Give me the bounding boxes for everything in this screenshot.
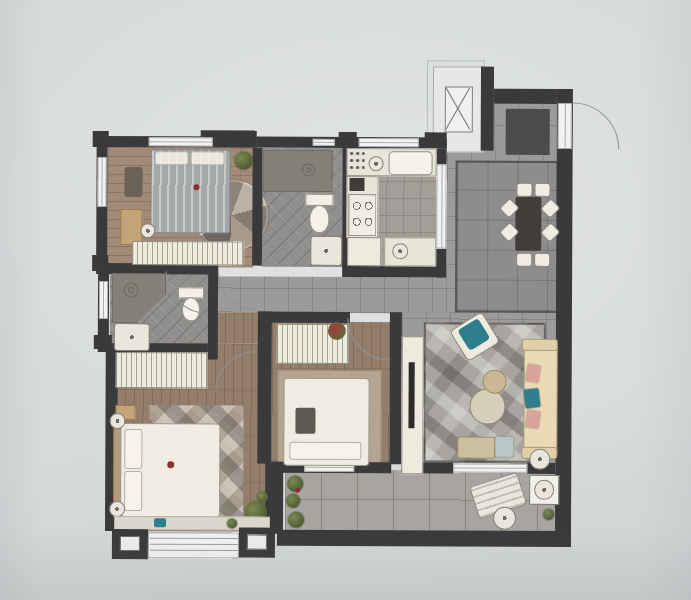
coffee-table-small xyxy=(483,370,507,394)
sofa-cushion-pink xyxy=(525,410,540,429)
prep-bowl xyxy=(392,243,408,259)
elevator-car-symbol xyxy=(445,86,473,132)
sofa-armrest-top xyxy=(522,339,558,351)
vanity-sink xyxy=(310,236,342,266)
wall-tv xyxy=(389,312,402,464)
kitchen-sliding-door xyxy=(436,164,446,248)
bed-pillow xyxy=(155,151,189,165)
dining-chair xyxy=(516,183,532,197)
bed-pillow xyxy=(191,151,225,165)
dresser xyxy=(124,167,142,197)
center-bed-pillow xyxy=(289,442,361,460)
bed-decor xyxy=(193,184,199,190)
balcony-side-table xyxy=(493,507,516,530)
dining-chair xyxy=(516,253,532,267)
wall-balcony-bottom xyxy=(277,530,571,547)
living-balcony-sliding-door xyxy=(453,463,527,472)
balcony-plant xyxy=(286,494,300,508)
wall-kitchen-right-stub-bottom xyxy=(436,248,446,277)
plant-bedroom xyxy=(235,152,253,170)
master-pillow xyxy=(124,429,142,469)
shower-area xyxy=(262,150,332,192)
dining-chair xyxy=(534,183,550,197)
window-top-bathroom xyxy=(313,139,335,146)
column-left-middle xyxy=(92,255,108,271)
plant-master-small xyxy=(257,492,268,503)
dining-chair xyxy=(534,253,550,267)
stove-burners xyxy=(348,194,376,236)
sofa-cushion-teal xyxy=(524,388,541,409)
walk-in-wardrobe xyxy=(116,352,208,388)
center-bed-throw xyxy=(295,408,315,434)
floor-hallway xyxy=(216,276,446,313)
master-vanity-sink xyxy=(114,323,150,351)
wall-elevator-right xyxy=(481,67,494,151)
column-top-left xyxy=(93,131,109,147)
toilet-bowl xyxy=(309,205,329,233)
wall-foyer-top xyxy=(494,89,557,104)
master-pillow xyxy=(124,471,142,511)
kettle xyxy=(369,156,384,171)
master-bed-decor xyxy=(167,461,174,468)
flowers-on-wardrobe xyxy=(328,322,346,340)
bench xyxy=(457,436,495,458)
fridge xyxy=(347,237,381,266)
dining-table xyxy=(515,197,541,251)
bay-column-left xyxy=(112,529,148,559)
kitchen-sink xyxy=(389,151,433,175)
balcony-flower xyxy=(295,488,300,493)
wall-sconce-symbol xyxy=(109,413,125,429)
wall-hall-masterbath-divider xyxy=(208,263,218,359)
wall-kitchen-bottom xyxy=(342,266,446,277)
floor-lamp xyxy=(529,449,550,470)
coffee-machine xyxy=(349,178,364,191)
spice-rack xyxy=(349,150,365,172)
washing-machine-drum xyxy=(534,480,554,500)
window-left-master-bathroom xyxy=(99,281,108,319)
bay-column-core xyxy=(120,536,140,551)
wall-master-centerbedroom-divider xyxy=(257,312,272,464)
window-top-bedroom xyxy=(149,137,213,146)
entry-door-opening xyxy=(558,103,572,149)
bay-column-right xyxy=(239,528,275,558)
bay-window-glazing xyxy=(148,532,239,558)
floor-plan-photo xyxy=(0,0,691,600)
window-left-bedroom xyxy=(97,157,106,207)
window-top-kitchen xyxy=(359,138,419,147)
wall-kitchen-right-stub-top xyxy=(437,148,447,164)
bay-column-core xyxy=(247,535,267,550)
master-toilet-bowl xyxy=(182,297,200,321)
balcony-plant xyxy=(288,512,304,528)
column-top-kitchen xyxy=(425,132,447,148)
column-left-lower xyxy=(94,335,112,349)
ottoman xyxy=(495,437,513,457)
stool xyxy=(140,223,155,238)
wall-bedroom-bathroom-divider xyxy=(252,148,263,266)
entry-door-swing xyxy=(573,103,619,149)
floor-plan xyxy=(0,0,691,600)
entry-doormat xyxy=(506,109,550,155)
wall-sconce-symbol xyxy=(109,501,125,517)
cabinet xyxy=(120,209,142,245)
tv xyxy=(408,362,414,428)
column-top-bath xyxy=(339,132,357,148)
sofa-cushion-pink xyxy=(525,364,541,383)
coffee-table-large xyxy=(469,389,505,425)
balcony-plant-small xyxy=(543,509,554,520)
wardrobe-bedroom xyxy=(132,241,244,265)
sill-plant xyxy=(227,518,237,528)
sill-decor-blue xyxy=(154,518,166,527)
